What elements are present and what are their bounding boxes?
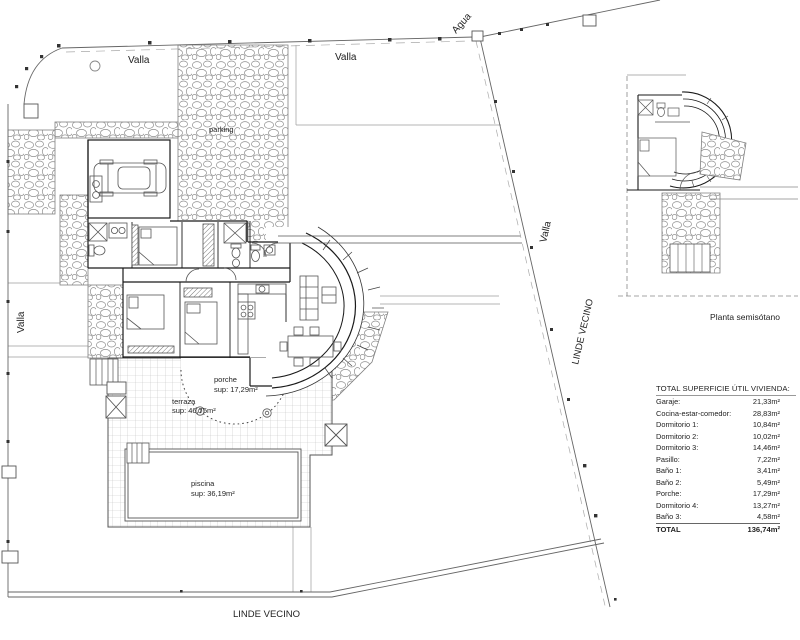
row-label: Baño 2: (656, 477, 681, 489)
row-label: Dormitorio 4: (656, 500, 698, 512)
porche-sup-label: sup: 17,29m² (214, 385, 258, 394)
row-value: 10,84m² (753, 419, 780, 431)
row-value: 21,33m² (753, 396, 780, 408)
row-value: 17,29m² (753, 488, 780, 500)
table-row: Dormitorio 2:10,02m² (656, 431, 780, 443)
row-label: Garaje: (656, 396, 680, 408)
row-label: Dormitorio 2: (656, 431, 698, 443)
cobble-strip-top (55, 122, 178, 138)
porche-label: porche (214, 375, 237, 384)
table-row: Porche:17,29m² (656, 488, 780, 500)
row-label: Dormitorio 3: (656, 442, 698, 454)
row-label: Baño 1: (656, 465, 681, 477)
terraza-sup-label: sup: 46,75m² (172, 406, 216, 415)
table-row: Garaje:21,33m² (656, 396, 780, 408)
driveway-cobbles (178, 45, 288, 242)
row-value: 14,46m² (753, 442, 780, 454)
row-label: Porche: (656, 488, 681, 500)
table-row: Baño 2:5,49m² (656, 477, 780, 489)
cobble-side-path-1 (60, 195, 88, 285)
table-row: Baño 1:3,41m² (656, 465, 780, 477)
table-row: Pasillo:7,22m² (656, 454, 780, 466)
total-label: TOTAL (656, 524, 681, 536)
linde-vecino-bottom-label: LINDE VECINO (233, 609, 300, 620)
row-value: 4,58m² (757, 511, 780, 523)
piscina-sup-label: sup: 36,19m² (191, 489, 235, 498)
area-table-rows: Garaje:21,33m² Cocina-estar-comedor:28,8… (656, 396, 780, 536)
table-row: Dormitorio 4:13,27m² (656, 500, 780, 512)
area-table-title: TOTAL SUPERFICIE ÚTIL VIVIENDA: (656, 384, 796, 396)
area-table: TOTAL SUPERFICIE ÚTIL VIVIENDA: Garaje:2… (656, 384, 796, 536)
table-row: Cocina-estar-comedor:28,83m² (656, 408, 780, 420)
total-value: 136,74m² (747, 524, 780, 536)
row-value: 28,83m² (753, 408, 780, 420)
piscina-label: piscina (191, 479, 215, 488)
valla-top-left-label: Valla (128, 55, 150, 66)
site-plan-drawing: Agua Valla Valla Valla Valla parking LIN… (0, 0, 800, 640)
table-row: Dormitorio 3:14,46m² (656, 442, 780, 454)
terrace-stairs (90, 359, 118, 385)
table-total-row: TOTAL136,74m² (656, 523, 780, 536)
planta-semisotano-label: Planta semisótano (710, 312, 780, 322)
row-label: Baño 3: (656, 511, 681, 523)
row-value: 3,41m² (757, 465, 780, 477)
valla-left-label: Valla (16, 311, 27, 333)
hall-wardrobe (203, 224, 214, 266)
pool-steps (127, 443, 149, 463)
row-value: 7,22m² (757, 454, 780, 466)
parking-label: parking (209, 125, 234, 134)
cobble-left-block (8, 130, 55, 214)
row-label: Cocina-estar-comedor: (656, 408, 731, 420)
row-label: Pasillo: (656, 454, 680, 466)
row-value: 13,27m² (753, 500, 780, 512)
table-row: Baño 3:4,58m² (656, 511, 780, 523)
site-plan-page: Agua Valla Valla Valla Valla parking LIN… (0, 0, 800, 640)
table-row: Dormitorio 1:10,84m² (656, 419, 780, 431)
row-value: 10,02m² (753, 431, 780, 443)
valla-top-mid-label: Valla (335, 52, 357, 63)
terraza-label: terraza (172, 397, 196, 406)
mini-plan-stairs (670, 244, 710, 272)
row-value: 5,49m² (757, 477, 780, 489)
row-label: Dormitorio 1: (656, 419, 698, 431)
cobble-side-path-2 (88, 285, 123, 358)
